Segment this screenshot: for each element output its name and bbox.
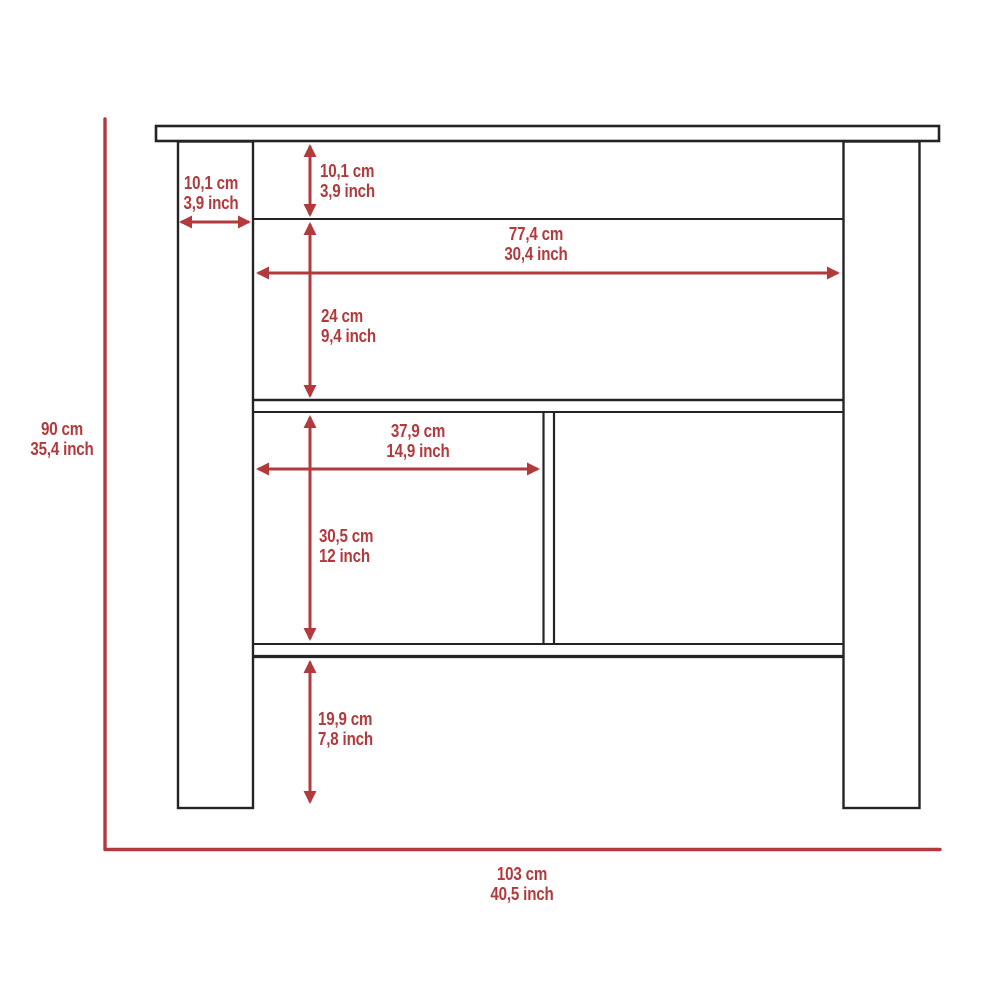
dim-value-inch: 30,4 inch: [469, 244, 603, 264]
dim-value-cm: 10,1 cm: [161, 173, 262, 193]
dim-value-inch: 40,5 inch: [455, 884, 589, 904]
dim-label-upper-height: 24 cm 9,4 inch: [321, 306, 376, 346]
top-board: [156, 126, 939, 141]
dim-value-cm: 30,5 cm: [319, 526, 373, 546]
dim-value-cm: 19,9 cm: [318, 709, 373, 729]
dim-label-cubby-height: 30,5 cm 12 inch: [319, 526, 373, 566]
dim-label-overall-height: 90 cm 35,4 inch: [12, 419, 113, 459]
dim-value-cm: 77,4 cm: [469, 224, 603, 244]
dim-value-cm: 37,9 cm: [351, 421, 485, 441]
dim-value-inch: 9,4 inch: [321, 326, 376, 346]
dim-label-leg-width: 10,1 cm 3,9 inch: [161, 173, 262, 213]
diagram-drawing: [0, 0, 1000, 1000]
right-leg: [844, 142, 920, 809]
dim-value-inch: 12 inch: [319, 546, 373, 566]
dim-value-cm: 103 cm: [455, 864, 589, 884]
dim-value-inch: 14,9 inch: [351, 441, 485, 461]
dim-value-inch: 7,8 inch: [318, 729, 373, 749]
dim-label-inner-width: 77,4 cm 30,4 inch: [469, 224, 603, 264]
dim-label-bottom-clearance: 19,9 cm 7,8 inch: [318, 709, 373, 749]
dim-value-inch: 35,4 inch: [12, 439, 113, 459]
dim-value-cm: 24 cm: [321, 306, 376, 326]
dim-value-cm: 10,1 cm: [320, 161, 375, 181]
dim-label-cubby-width: 37,9 cm 14,9 inch: [351, 421, 485, 461]
dim-value-inch: 3,9 inch: [161, 193, 262, 213]
left-leg: [178, 142, 253, 809]
dim-label-top-gap: 10,1 cm 3,9 inch: [320, 161, 375, 201]
dim-value-cm: 90 cm: [12, 419, 113, 439]
dimension-diagram: 90 cm 35,4 inch 10,1 cm 3,9 inch 10,1 cm…: [0, 0, 1000, 1000]
dim-label-overall-width: 103 cm 40,5 inch: [455, 864, 589, 904]
dim-value-inch: 3,9 inch: [320, 181, 375, 201]
